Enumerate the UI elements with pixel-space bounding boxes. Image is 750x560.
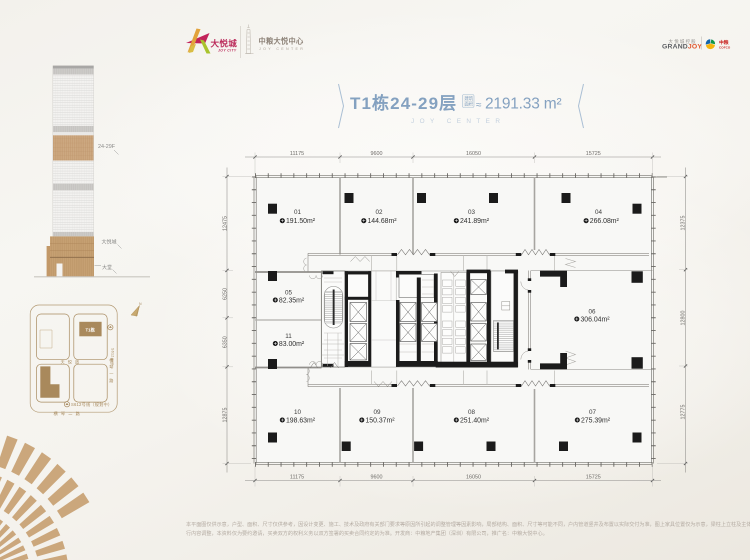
- svg-text:24-29F: 24-29F: [98, 144, 116, 150]
- svg-text:天悦道: 天悦道: [61, 358, 83, 365]
- svg-text:306.04m²: 306.04m²: [580, 316, 610, 323]
- svg-text:12875: 12875: [223, 408, 229, 423]
- svg-text:06: 06: [588, 309, 596, 316]
- svg-text:251.40m²: 251.40m²: [460, 417, 490, 424]
- svg-text:6350: 6350: [223, 336, 229, 348]
- svg-text:JOY CENTER: JOY CENTER: [411, 118, 505, 125]
- svg-text:中粮大悦中心: 中粮大悦中心: [259, 37, 304, 46]
- svg-text:15725: 15725: [586, 475, 601, 481]
- svg-text:≈: ≈: [476, 100, 482, 111]
- svg-text:6250: 6250: [223, 288, 229, 300]
- svg-text:2191.33 m²: 2191.33 m²: [485, 96, 561, 113]
- svg-text:S612号线（规划中）: S612号线（规划中）: [71, 401, 112, 408]
- svg-text:GRANDJOY: GRANDJOY: [662, 44, 702, 51]
- svg-text:12775: 12775: [681, 405, 687, 420]
- svg-text:11175: 11175: [290, 475, 304, 481]
- svg-text:T1栋24-29层: T1栋24-29层: [350, 93, 457, 113]
- svg-text:150.37m²: 150.37m²: [365, 417, 395, 424]
- svg-text:02: 02: [375, 209, 383, 216]
- svg-text:大悦城: 大悦城: [211, 38, 238, 49]
- svg-text:12800: 12800: [681, 311, 687, 326]
- svg-text:行内容调整，本资料仅为要约邀请，买卖双方的权利义务以双方签署: 行内容调整，本资料仅为要约邀请，买卖双方的权利义务以双方签署的买卖合同约定的为准…: [186, 530, 548, 537]
- svg-text:15725: 15725: [586, 151, 601, 157]
- svg-text:266.08m²: 266.08m²: [590, 218, 620, 225]
- svg-text:09: 09: [373, 409, 381, 416]
- svg-text:面积: 面积: [464, 101, 473, 108]
- svg-text:16050: 16050: [466, 475, 481, 481]
- svg-text:大悦城: 大悦城: [102, 239, 117, 246]
- svg-text:JOY CITY: JOY CITY: [218, 49, 237, 53]
- svg-text:横琴二路: 横琴二路: [54, 410, 84, 417]
- svg-text:82.35m²: 82.35m²: [279, 297, 305, 304]
- svg-text:07: 07: [589, 409, 597, 416]
- svg-text:191.50m²: 191.50m²: [286, 218, 316, 225]
- svg-text:本平面图仅供示意，户型、面积、尺寸仅供参考，因设计变更、施工: 本平面图仅供示意，户型、面积、尺寸仅供参考，因设计变更、施工、技术及政府有关部门…: [186, 521, 750, 528]
- svg-text:05: 05: [285, 290, 293, 297]
- svg-text:241.89m²: 241.89m²: [460, 218, 490, 225]
- svg-text:83.00m²: 83.00m²: [279, 341, 305, 348]
- svg-text:大堂: 大堂: [102, 264, 112, 271]
- svg-text:01: 01: [294, 209, 302, 216]
- svg-text:11175: 11175: [290, 151, 304, 157]
- svg-text:16050: 16050: [466, 151, 481, 157]
- svg-text:10: 10: [294, 409, 302, 416]
- svg-text:9600: 9600: [371, 475, 383, 481]
- svg-text:JOY CENTER: JOY CENTER: [259, 47, 305, 51]
- svg-text:275.39m²: 275.39m²: [581, 417, 611, 424]
- svg-text:08: 08: [468, 409, 476, 416]
- svg-text:198.63m²: 198.63m²: [286, 417, 316, 424]
- svg-text:04: 04: [595, 209, 603, 216]
- svg-text:03: 03: [468, 209, 476, 216]
- svg-text:144.68m²: 144.68m²: [367, 218, 397, 225]
- svg-text:COFCO: COFCO: [719, 45, 731, 49]
- svg-text:T1栋: T1栋: [86, 326, 96, 333]
- svg-text:11: 11: [285, 333, 292, 340]
- svg-text:12475: 12475: [223, 216, 229, 231]
- svg-text:N: N: [139, 302, 142, 306]
- svg-text:横琴一路: 横琴一路: [108, 357, 114, 385]
- svg-text:9600: 9600: [371, 151, 383, 157]
- svg-text:12375: 12375: [681, 216, 687, 231]
